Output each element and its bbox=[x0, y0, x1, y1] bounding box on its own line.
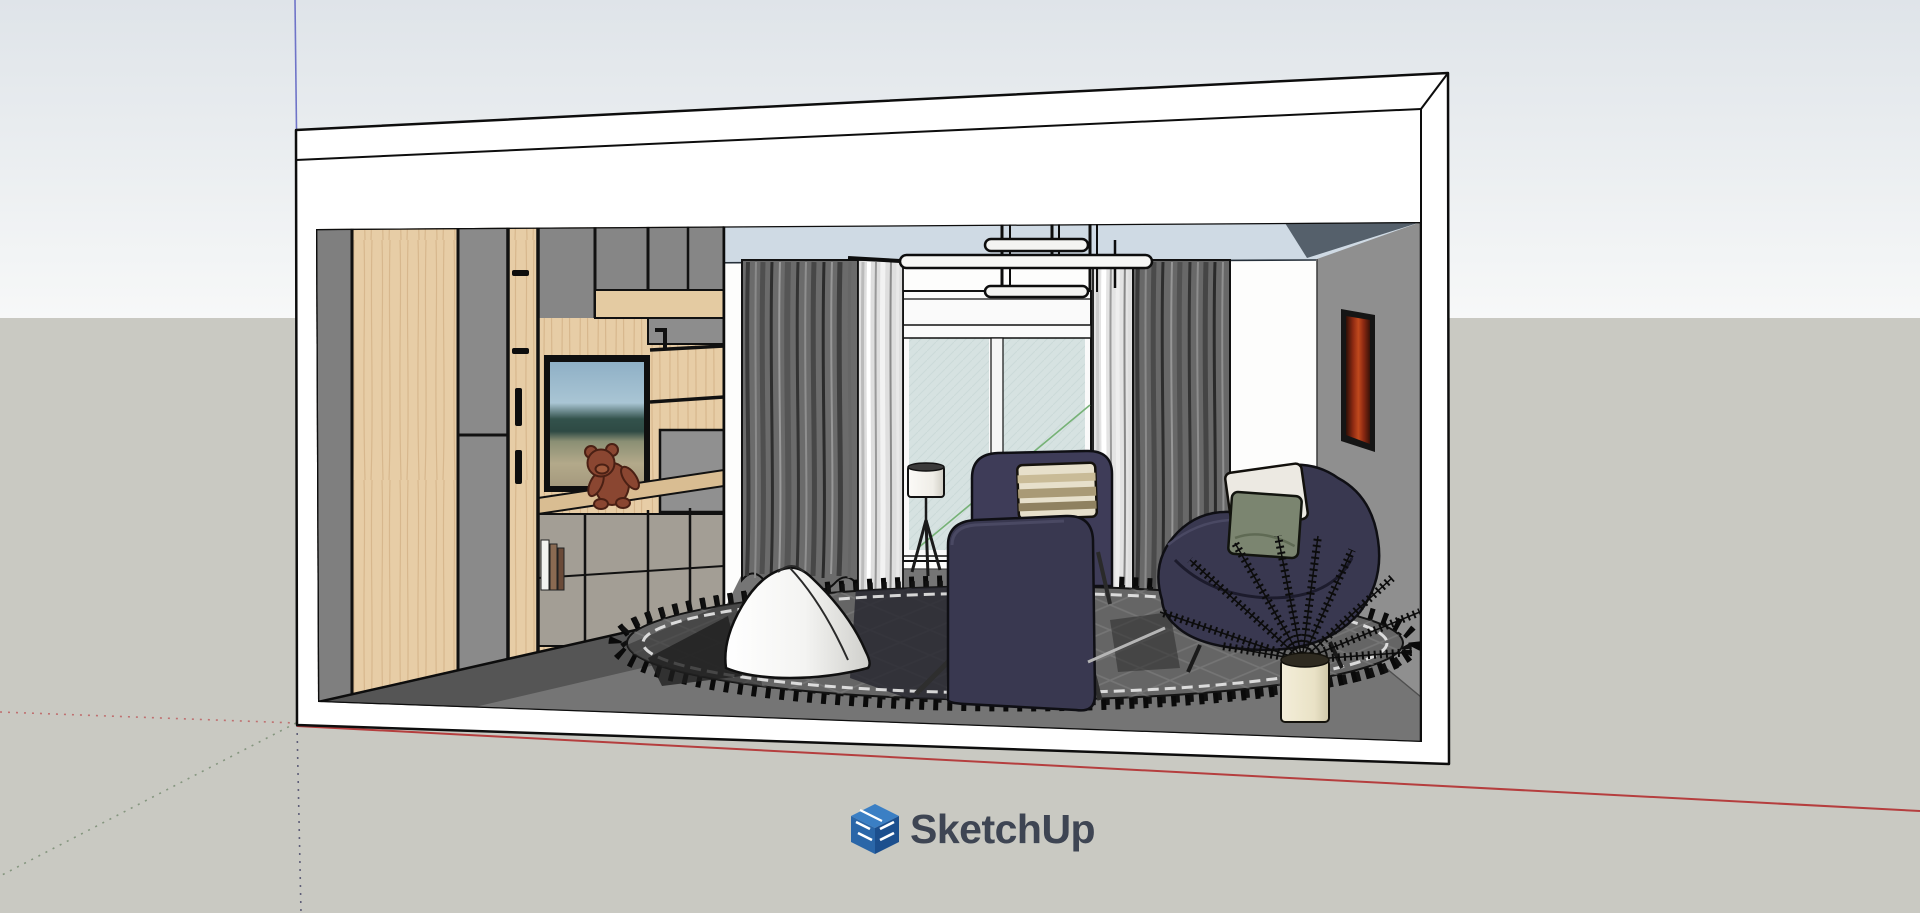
sketchup-3d-viewport[interactable]: SketchUp bbox=[0, 0, 1920, 913]
sketchup-watermark: SketchUp bbox=[851, 804, 1095, 854]
light-bar-lower bbox=[985, 286, 1088, 297]
light-bar-long bbox=[900, 255, 1152, 268]
logo-text: SketchUp bbox=[910, 806, 1095, 852]
left-curtain bbox=[742, 260, 903, 626]
wall-art-canvas bbox=[1346, 316, 1370, 444]
books bbox=[541, 540, 564, 590]
plant-pot bbox=[1281, 660, 1329, 722]
wardrobe-gray-door bbox=[458, 222, 508, 712]
window-transom bbox=[903, 325, 1091, 338]
wardrobe-gray-panel bbox=[316, 222, 352, 712]
striped-pillow bbox=[1017, 463, 1097, 520]
wood-shelf-band bbox=[595, 290, 724, 318]
light-bar-upper bbox=[985, 239, 1088, 251]
green-pillow bbox=[1228, 492, 1302, 559]
